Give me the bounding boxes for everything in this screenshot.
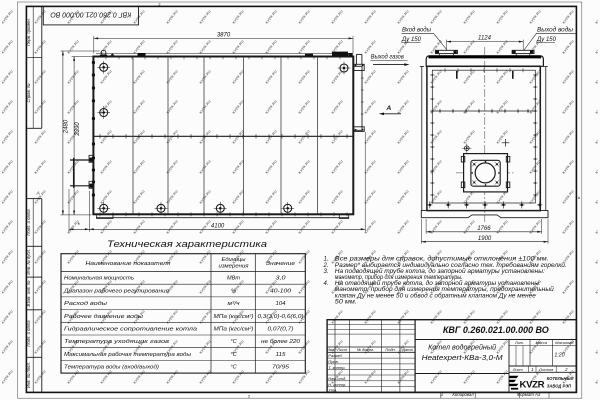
svg-text:м³/ч: м³/ч xyxy=(228,301,240,307)
svg-text:КВГ 0.260.021.00.000 ВО: КВГ 0.260.021.00.000 ВО xyxy=(50,11,132,18)
svg-text:Расход воды: Расход воды xyxy=(64,301,107,307)
svg-text:Ду 150: Ду 150 xyxy=(401,37,422,43)
svg-text:Котел водогрейный: Котел водогрейный xyxy=(428,343,496,352)
svg-text:Инв. № дубл.: Инв. № дубл. xyxy=(26,249,31,275)
svg-text:Гидравлическое сопротивление к: Гидравлическое сопротивление котла xyxy=(64,327,197,333)
svg-text:Номинальная мощность: Номинальная мощность xyxy=(64,276,134,282)
svg-text:°С: °С xyxy=(230,352,237,358)
svg-text:Перв. примен.: Перв. примен. xyxy=(26,18,31,46)
svg-text:А: А xyxy=(36,191,40,196)
svg-text:Масса: Масса xyxy=(535,340,547,345)
svg-text:Подп.: Подп. xyxy=(385,347,395,352)
svg-text:Утв.: Утв. xyxy=(328,387,337,392)
svg-text:1:20: 1:20 xyxy=(554,353,564,359)
svg-text:Лист: Лист xyxy=(512,367,524,372)
svg-text:Ду 150: Ду 150 xyxy=(536,37,557,43)
svg-text:°С: °С xyxy=(230,339,237,345)
svg-text:Дата: Дата xyxy=(401,347,413,352)
svg-text:2480: 2480 xyxy=(64,119,70,134)
svg-text:1.: 1. xyxy=(324,257,329,263)
svg-text:2.: 2. xyxy=(323,263,329,269)
svg-text:Т. контр.: Т. контр. xyxy=(328,365,345,370)
svg-text:Наименование показателя: Наименование показателя xyxy=(86,261,171,267)
svg-text:МВт: МВт xyxy=(227,276,240,282)
svg-text:А: А xyxy=(385,105,391,112)
svg-text:МПа (кгс/см²): МПа (кгс/см²) xyxy=(214,327,254,333)
svg-text:Пров.: Пров. xyxy=(328,359,339,364)
svg-text:манометр, прибор для измерения: манометр, прибор для измерения температу… xyxy=(335,275,463,281)
svg-text:0,3(3,0)-0,6(6,0): 0,3(3,0)-0,6(6,0) xyxy=(258,314,304,320)
svg-text:4100: 4100 xyxy=(211,223,225,229)
svg-text:не более 220: не более 220 xyxy=(261,339,301,345)
svg-text:КОТЕЛЬНЫЙ: КОТЕЛЬНЫЙ xyxy=(547,376,575,381)
svg-text:Разраб.: Разраб. xyxy=(328,353,342,358)
svg-text:2390: 2390 xyxy=(75,122,81,137)
svg-text:Вход воды: Вход воды xyxy=(402,28,432,34)
svg-text:Выход воды: Выход воды xyxy=(537,28,574,34)
svg-text:1124: 1124 xyxy=(478,36,492,42)
svg-text:Листов: Листов xyxy=(538,367,553,372)
svg-text:70/95: 70/95 xyxy=(272,365,290,371)
svg-text:3,0: 3,0 xyxy=(276,276,287,282)
svg-text:KVZR: KVZR xyxy=(520,380,545,391)
svg-text:Все размеры для справок, допус: Все размеры для справок, допустимые откл… xyxy=(335,257,549,263)
svg-text:2: 2 xyxy=(159,2,161,6)
svg-text:Heatexpert-КВа-3,0-М: Heatexpert-КВа-3,0-М xyxy=(422,353,504,362)
svg-text:%: % xyxy=(231,288,236,294)
svg-text:40-100: 40-100 xyxy=(270,288,292,294)
svg-text:104: 104 xyxy=(276,301,286,307)
svg-text:На подводящей трубе котла, до: На подводящей трубе котла, до запорной а… xyxy=(335,268,545,275)
svg-text:1900: 1900 xyxy=(478,236,492,242)
svg-text:Значение: Значение xyxy=(266,261,295,267)
svg-text:клапан Ду не менее 50 и обвод: клапан Ду не менее 50 и обвод с обратным… xyxy=(335,293,537,299)
svg-text:4.: 4. xyxy=(324,281,329,287)
svg-text:Выход газов: Выход газов xyxy=(371,55,404,61)
svg-text:Масштаб: Масштаб xyxy=(555,340,574,345)
svg-text:КВГ 0.260.021.00.000 ВО: КВГ 0.260.021.00.000 ВО xyxy=(443,325,549,335)
svg-text:2: 2 xyxy=(248,395,250,399)
svg-text:1766: 1766 xyxy=(477,226,491,232)
svg-text:Размер* выбирается индивидуаль: Размер* выбирается индивидуально согласн… xyxy=(335,263,567,269)
svg-text:3870: 3870 xyxy=(217,33,231,39)
svg-text:измерения: измерения xyxy=(219,264,249,270)
svg-text:Подп. и дата: Подп. и дата xyxy=(26,209,31,236)
svg-text:Техническая характеристика: Техническая характеристика xyxy=(107,239,267,250)
svg-text:Температура уходящих газов: Температура уходящих газов xyxy=(64,339,169,345)
svg-text:МПа (кгс/см²): МПа (кгс/см²) xyxy=(214,314,254,320)
svg-text:50 мм.: 50 мм. xyxy=(335,299,357,305)
svg-text:Нач. отд.: Нач. отд. xyxy=(328,376,346,381)
svg-text:1: 1 xyxy=(531,367,533,372)
svg-text:№ докум.: № докум. xyxy=(357,347,374,352)
svg-text:манометр, прибор для измерения: манометр, прибор для измерения температу… xyxy=(335,286,555,293)
svg-text:Инв. № подл.: Инв. № подл. xyxy=(26,362,31,388)
svg-text:°С: °С xyxy=(230,365,237,371)
svg-text:Изм.: Изм. xyxy=(327,347,335,352)
svg-text:Н. контр.: Н. контр. xyxy=(328,382,346,387)
svg-text:Рабочее давление воды: Рабочее давление воды xyxy=(64,314,143,320)
svg-text:Температура воды (вход/выход): Температура воды (вход/выход) xyxy=(64,365,159,371)
svg-text:Копировал: Копировал xyxy=(452,392,474,397)
svg-text:Формат А3: Формат А3 xyxy=(517,392,541,397)
svg-text:Справ. №: Справ. № xyxy=(26,83,31,102)
svg-text:3.: 3. xyxy=(324,269,329,275)
svg-text:0,07(0,7): 0,07(0,7) xyxy=(268,327,294,333)
svg-text:Взам. инв. №: Взам. инв. № xyxy=(26,280,31,306)
svg-text:Лист: Лист xyxy=(336,347,348,352)
svg-text:На отводящей трубе котла, до з: На отводящей трубе котла, до запорной ар… xyxy=(335,280,541,287)
svg-text:Подп. и дата: Подп. и дата xyxy=(26,320,31,347)
svg-text:Диапазон рабочего регулировани: Диапазон рабочего регулирования xyxy=(63,288,169,294)
svg-text:Лит.: Лит. xyxy=(514,340,524,345)
svg-text:Максимальная рабочая температу: Максимальная рабочая температура воды xyxy=(64,352,191,358)
svg-text:Единицы: Единицы xyxy=(222,257,246,263)
svg-text:115: 115 xyxy=(276,352,287,358)
svg-text:ЗАВОД РЭП: ЗАВОД РЭП xyxy=(547,384,572,389)
